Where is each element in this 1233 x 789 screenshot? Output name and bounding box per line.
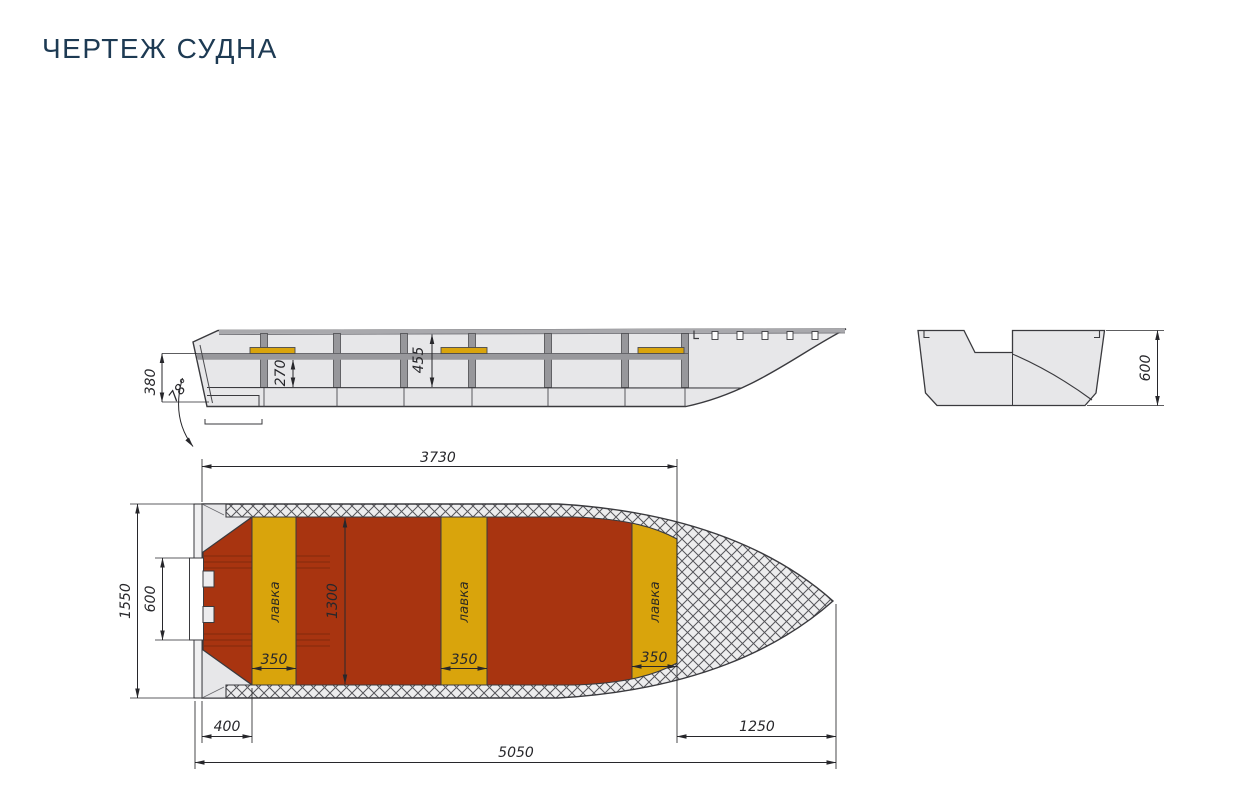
frame-rib — [622, 334, 629, 388]
dim-transom-recess: 600 — [143, 586, 159, 613]
bench-label: лавка — [456, 581, 472, 623]
dim-inner-depth: 270 — [273, 360, 289, 387]
bench-seat-side — [638, 348, 684, 354]
motor-clamp-tab — [203, 571, 214, 587]
dim-bench-width: 350 — [451, 652, 478, 668]
side-deck-band — [219, 331, 845, 333]
side-floor-line — [207, 388, 742, 389]
oarlock-notch — [712, 332, 718, 340]
frame-rib — [469, 334, 476, 388]
dim-overall-length: 5050 — [498, 745, 534, 761]
dim-cockpit-width: 1300 — [325, 583, 341, 619]
dim-stern-offset: 400 — [214, 719, 241, 735]
ship-drawing: 380 78° 270 455 600 — [0, 0, 1233, 789]
oarlock-notch — [737, 332, 743, 340]
section-outline — [918, 331, 1105, 406]
motor-clamp-tab — [203, 607, 214, 623]
oarlock-notch — [762, 332, 768, 340]
plan-view: лавка лавка лавка 3730 1550 600 — [118, 450, 836, 769]
side-view: 380 78° 270 455 — [143, 329, 846, 447]
dim-mid-depth: 455 — [411, 347, 427, 374]
dim-transom-height: 380 — [143, 369, 159, 396]
transom-recess — [190, 558, 204, 640]
bench-seat-side — [250, 348, 295, 354]
dim-cockpit-length: 3730 — [420, 450, 456, 466]
frame-rib — [545, 334, 552, 388]
frame-rib — [682, 334, 689, 388]
bench-label: лавка — [267, 581, 283, 623]
stern-bracket — [205, 419, 262, 424]
oarlock-notch — [812, 332, 818, 340]
dim-transom-angle: 78° — [166, 376, 194, 405]
dim-section-height: 600 — [1138, 355, 1154, 382]
side-hull-outline — [193, 329, 846, 407]
dim-bow-length: 1250 — [739, 719, 775, 735]
drawing-page: { "title": "ЧЕРТЕЖ СУДНА", "colors": { "… — [0, 0, 1233, 789]
frame-rib — [334, 334, 341, 388]
section-view: 600 — [918, 331, 1164, 406]
dim-bench-width: 350 — [261, 652, 288, 668]
frame-rib — [401, 334, 408, 388]
bench-seat-side — [441, 348, 487, 354]
frame-rib — [261, 334, 268, 388]
dim-bench-width: 350 — [641, 650, 668, 666]
bench-label: лавка — [647, 581, 663, 623]
oarlock-notch — [787, 332, 793, 340]
dim-beam: 1550 — [118, 583, 134, 619]
